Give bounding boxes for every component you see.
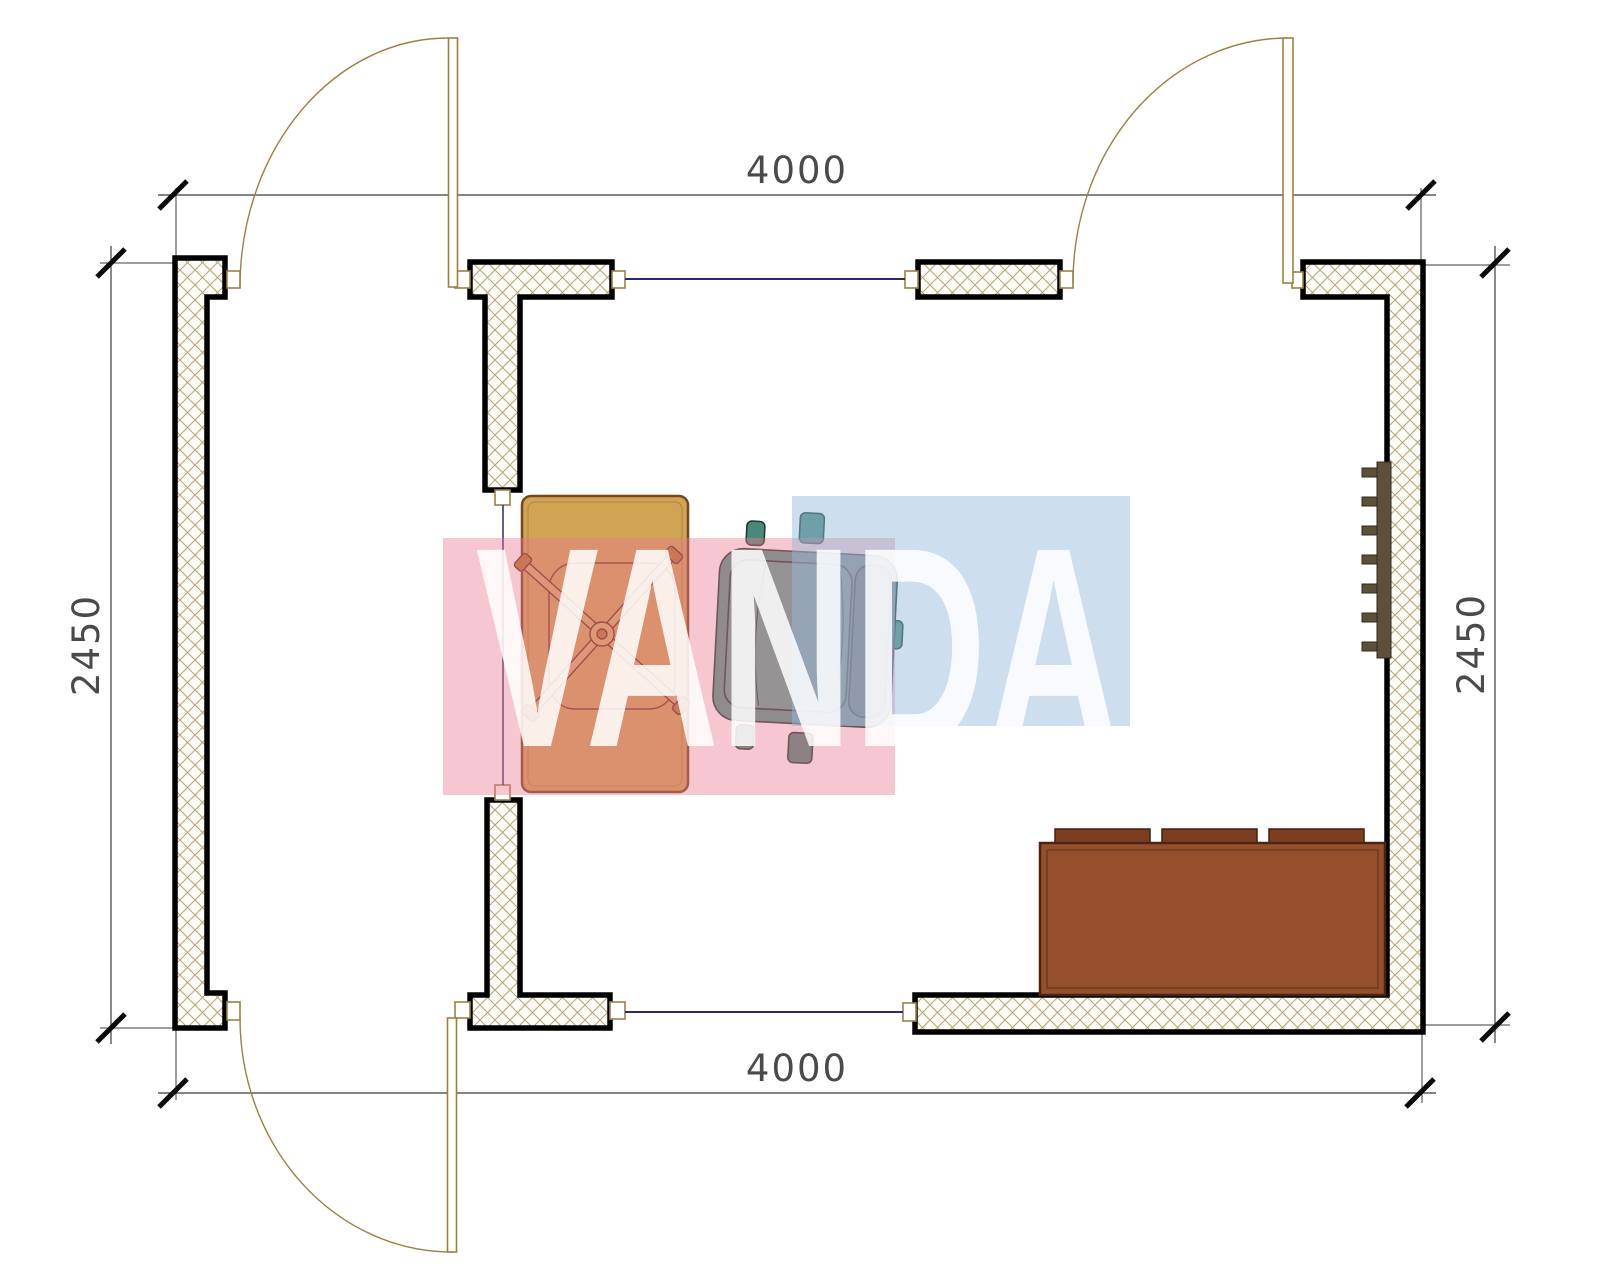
wall-top-middle-right (918, 262, 1060, 297)
dimension-right-label: 2450 (1450, 593, 1493, 695)
dimension-top-label: 4000 (746, 149, 848, 192)
dimension-left-label: 2450 (65, 594, 108, 696)
door-leaf (1283, 38, 1293, 283)
door-leaf (449, 38, 458, 287)
sofa-body (1040, 843, 1385, 995)
door-leaf (448, 1018, 457, 1252)
watermark-text: VANDA (476, 489, 1121, 807)
watermark: VANDA (443, 489, 1130, 807)
sofa (1040, 829, 1385, 995)
floor-plan-drawing: 4000 4000 2450 2450 (0, 0, 1600, 1280)
dimension-bottom-label: 4000 (746, 1047, 848, 1090)
